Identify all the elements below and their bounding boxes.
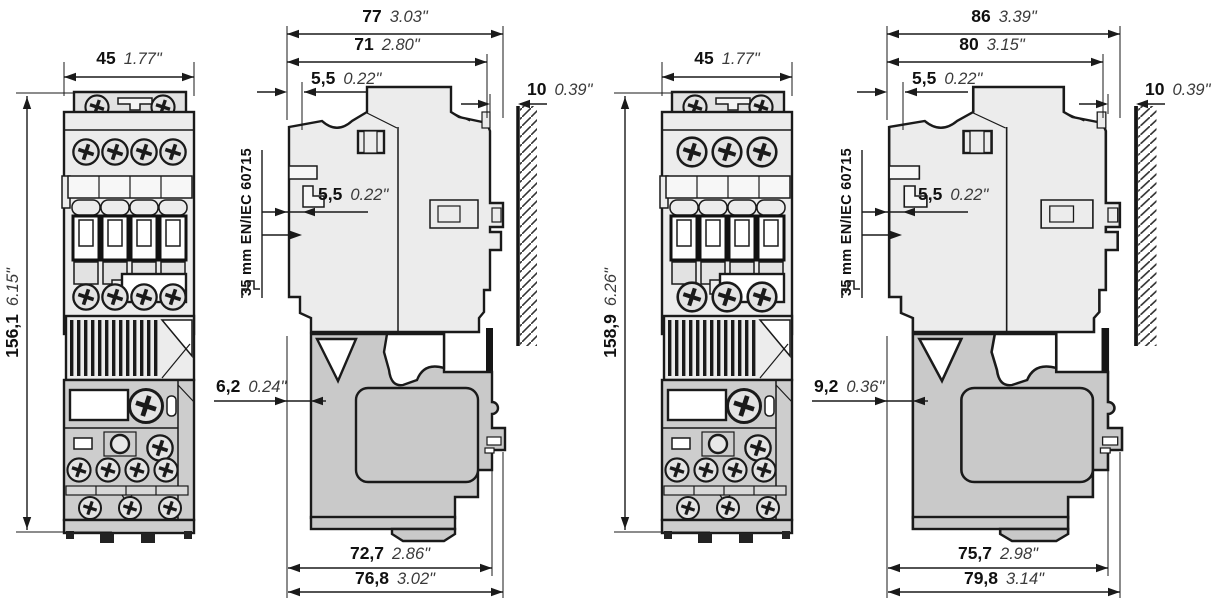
dim-inch: 1.77" <box>722 50 761 68</box>
dim-inch: 0.39" <box>1172 81 1211 99</box>
dim-label: 79,83.14" <box>964 568 1045 588</box>
dim-label: 100.39" <box>527 79 594 99</box>
dim-inch: 2.86" <box>391 545 431 563</box>
dim-label: 773.03" <box>362 6 429 26</box>
dim-mm: 10 <box>1145 79 1165 99</box>
dim-label: 5,50.22" <box>318 184 389 204</box>
left-group: 451.77" 156,16.15" 773.03" 712.80" 5,50.… <box>2 6 594 598</box>
dim-label: 100.39" <box>1145 79 1212 99</box>
dim-inch: 0.22" <box>944 70 983 88</box>
dim-inch: 6.15" <box>4 267 22 306</box>
dim-mm: 9,2 <box>814 376 839 396</box>
dim-inch: 0.36" <box>846 378 885 396</box>
dim-mm: 158,9 <box>600 314 620 358</box>
dim-mm: 77 <box>362 6 381 26</box>
dim-mm: 76,8 <box>355 568 389 588</box>
dim-mm: 86 <box>971 6 991 26</box>
dim-relay-offset-left: 6,20.24" <box>214 336 326 598</box>
dim-mm: 45 <box>694 48 714 68</box>
dim-label: 72,72.86" <box>350 543 431 563</box>
dim-mm: 156,1 <box>2 314 22 358</box>
dim-inch: 0.22" <box>350 186 389 204</box>
dim-inch: 3.15" <box>987 36 1026 54</box>
din-rail-standard-label: 35 mm EN/IEC 60715 <box>239 148 255 296</box>
dim-label: 803.15" <box>959 34 1026 54</box>
dim-label: 863.39" <box>971 6 1038 26</box>
dim-label: 156,16.15" <box>2 267 22 358</box>
dim-mm: 45 <box>96 48 116 68</box>
dim-label: 451.77" <box>694 48 761 68</box>
dim-inch: 3.02" <box>397 570 436 588</box>
dim-mm: 5,5 <box>311 68 336 88</box>
dim-mm: 71 <box>354 34 374 54</box>
dim-mm: 6,2 <box>216 376 241 396</box>
dim-label: 451.77" <box>96 48 163 68</box>
dim-inch: 2.80" <box>381 36 421 54</box>
dim-inch: 0.22" <box>343 70 382 88</box>
dim-label: 158,96.26" <box>600 267 620 358</box>
dim-label: 76,83.02" <box>355 568 436 588</box>
dim-inch: 6.26" <box>602 267 620 306</box>
dim-mm: 5,5 <box>912 68 937 88</box>
dim-label: 5,50.22" <box>918 184 989 204</box>
dim-front-width-left: 451.77" <box>64 48 194 96</box>
side-view-right <box>889 87 1156 541</box>
right-group: 451.77" 158,96.26" 863.39" 803.15" 5,50.… <box>600 6 1212 598</box>
side-view-left <box>289 87 537 541</box>
dim-label: 712.80" <box>354 34 421 54</box>
dim-inch: 1.77" <box>124 50 163 68</box>
dim-mm: 72,7 <box>350 543 384 563</box>
dim-inch: 3.39" <box>999 8 1038 26</box>
dim-label: 9,20.36" <box>814 376 885 396</box>
dim-inch: 3.14" <box>1006 570 1045 588</box>
dim-mm: 75,7 <box>958 543 992 563</box>
dimension-drawing: 451.77" 156,16.15" 773.03" 712.80" 5,50.… <box>0 0 1215 602</box>
din-rail-standard-label: 35 mm EN/IEC 60715 <box>839 148 855 296</box>
dim-mm: 10 <box>527 79 547 99</box>
dim-inch: 0.39" <box>554 81 593 99</box>
dim-label: 75,72.98" <box>958 543 1039 563</box>
dim-label: 6,20.24" <box>216 376 287 396</box>
dim-mm: 5,5 <box>318 184 343 204</box>
dim-inch: 3.03" <box>390 8 429 26</box>
dim-mm: 5,5 <box>918 184 943 204</box>
dim-inch: 2.98" <box>999 545 1039 563</box>
dim-mm: 79,8 <box>964 568 998 588</box>
dim-relay-offset-right: 9,20.36" <box>812 336 928 598</box>
dim-mm: 80 <box>959 34 979 54</box>
dim-label: 5,50.22" <box>311 68 382 88</box>
dimension-drawing-canvas: 451.77" 156,16.15" 773.03" 712.80" 5,50.… <box>0 0 1215 602</box>
dim-front-width-right: 451.77" <box>662 48 792 96</box>
dim-inch: 0.22" <box>950 186 989 204</box>
dim-label: 5,50.22" <box>912 68 983 88</box>
dim-inch: 0.24" <box>248 378 287 396</box>
